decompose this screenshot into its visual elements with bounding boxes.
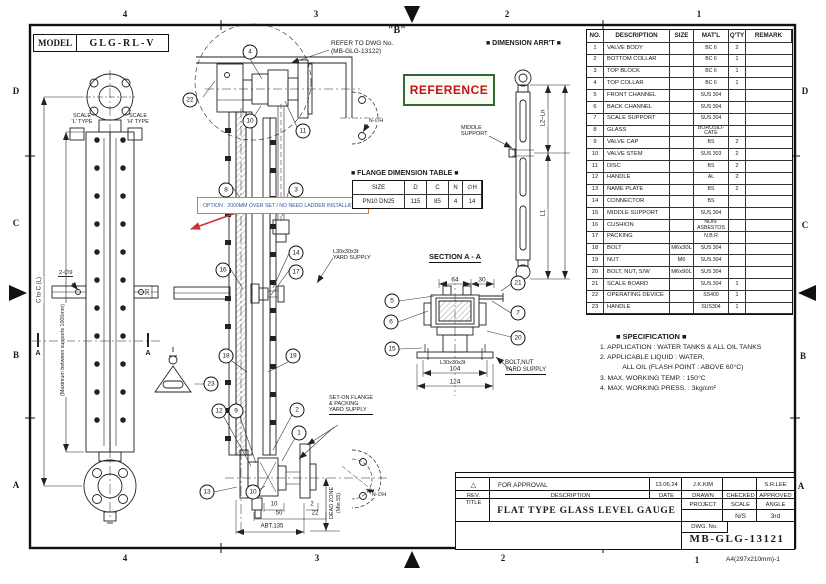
part-size: [670, 279, 694, 291]
part-remark: [746, 291, 792, 303]
parts-table-row: 17 PACKING N.B.R: [587, 232, 792, 244]
section-aa-title: SECTION A - A: [429, 253, 481, 263]
grid-col-top-2: 2: [505, 10, 510, 20]
part-description: BOLT, NUT, S/W: [604, 267, 670, 279]
parts-table-header-cell: NO.: [587, 30, 604, 43]
part-material: SUS304: [694, 303, 729, 315]
section-a-flag-right: A: [145, 350, 150, 358]
part-description: CUSHION: [604, 220, 670, 232]
part-qty: [729, 267, 746, 279]
part-qty: 2: [729, 43, 746, 55]
part-no: 21: [587, 279, 604, 291]
part-no: 18: [587, 244, 604, 256]
part-material: BS: [694, 185, 729, 197]
part-no: 22: [587, 291, 604, 303]
part-material: SUS 304: [694, 208, 729, 220]
part-qty: 2: [729, 173, 746, 185]
balloon-callout: 23: [204, 377, 219, 392]
part-size: [670, 173, 694, 185]
balloon-callout: 22: [183, 93, 198, 108]
dim-104-label: 104: [449, 365, 462, 372]
part-description: SCALE BOARD: [604, 279, 670, 291]
grid-col-bottom-3: 3: [315, 554, 320, 564]
part-size: M6x90L: [670, 267, 694, 279]
option-note-text: OPTION : 2000MM OVER SET / NO NEED LADDE…: [203, 203, 363, 209]
part-qty: [729, 196, 746, 208]
balloon-number: 4: [248, 49, 252, 56]
dim-l1-label: L1: [541, 209, 548, 218]
parts-table-header-row: NO.DESCRIPTIONSIZEMAT'LQ'TYREMARK: [587, 30, 792, 43]
part-remark: [746, 43, 792, 55]
part-description: BACK CHANNEL: [604, 102, 670, 114]
part-description: MIDDLE SUPPORT: [604, 208, 670, 220]
balloon-callout: 2: [290, 403, 305, 418]
dimension-arrt-drawing: [489, 70, 570, 279]
balloon-callout: 21: [511, 276, 526, 291]
grid-col-bottom-1: 1: [695, 556, 700, 566]
part-size: [670, 55, 694, 67]
part-remark: [746, 267, 792, 279]
parts-table-row: 22 OPERATING DEVICE SS400 1: [587, 291, 792, 303]
set-on-flange-note: SET-ON FLANGE& PACKINGYARD SUPPLY: [329, 395, 373, 415]
detail-b-title: "B": [388, 25, 406, 36]
part-remark: [746, 244, 792, 256]
detail-b-note-line2: (MB-GLG-13122): [331, 48, 381, 55]
flange-table-data-row: PN10 DN2511585414: [353, 195, 482, 208]
balloon-callout: 11: [296, 124, 311, 139]
part-description: BOTTOM COLLAR: [604, 55, 670, 67]
grid-row-left-a: A: [13, 481, 20, 491]
dim-30-label: 30: [477, 276, 486, 283]
middle-support-label-line2: SUPPORT: [461, 131, 488, 137]
part-description: OPERATING DEVICE: [604, 291, 670, 303]
parts-table-row: 7 SCALE SUPPORT SUS 304: [587, 114, 792, 126]
part-remark: [746, 220, 792, 232]
part-no: 19: [587, 255, 604, 267]
part-no: 20: [587, 267, 604, 279]
balloon-number: 20: [514, 335, 521, 342]
parts-table-row: 5 FRONT CHANNEL SUS 304: [587, 90, 792, 102]
grid-col-bottom-2: 2: [501, 554, 506, 564]
flange-table-header-cell: ∅H: [463, 181, 482, 195]
part-size: [670, 43, 694, 55]
grid-row-left-d: D: [13, 87, 20, 97]
part-size: [670, 114, 694, 126]
parts-table-row: 6 BACK CHANNEL SUS 304: [587, 102, 792, 114]
centering-arrow-right-icon: [798, 285, 816, 301]
balloon-callout: 6: [384, 315, 399, 330]
balloon-callout: 14: [289, 246, 304, 261]
parts-table-header-cell: REMARK: [746, 30, 792, 43]
part-size: [670, 232, 694, 244]
part-material: SUS 304: [694, 267, 729, 279]
flange-table-data-cell: PN10 DN25: [353, 195, 405, 208]
part-material: SUS 304: [694, 102, 729, 114]
flange-table-header-cell: SIZE: [353, 181, 405, 195]
dim-22-label: 22: [311, 511, 320, 518]
specification-line: 1. APPLICATION : WATER TANKS & ALL OIL T…: [600, 343, 812, 353]
balloon-callout: 20: [511, 331, 526, 346]
option-note-box: OPTION : 2000MM OVER SET / NO NEED LADDE…: [197, 197, 369, 214]
dead-zone-label: DEAD ZONE: [329, 486, 335, 520]
specification-block: ■ SPECIFICATION ■ 1. APPLICATION : WATER…: [600, 332, 812, 394]
part-description: CONNECTOR: [604, 196, 670, 208]
part-no: 1: [587, 43, 604, 55]
bolt-nut-yard-supply-note: BOLT,NUTYARD SUPPLY: [505, 360, 546, 375]
part-description: SCALE SUPPORT: [604, 114, 670, 126]
flange-table-header-cell: D: [405, 181, 427, 195]
model-label: MODEL: [34, 35, 77, 51]
balloon-callout: 19: [286, 349, 301, 364]
balloon-number: 16: [219, 267, 226, 274]
part-remark: [746, 114, 792, 126]
hole-count-label: 2-∅9: [58, 270, 73, 277]
part-material: BC 6: [694, 43, 729, 55]
specification-line: 4. MAX. WORKING PRESS. : 3kg/cm²: [600, 384, 812, 394]
balloon-callout: 15: [385, 342, 400, 357]
dwg-no-value: MB-GLG-13121: [681, 531, 793, 547]
part-size: [670, 90, 694, 102]
parts-table-header-cell: Q'TY: [729, 30, 746, 43]
part-qty: 1: [729, 67, 746, 79]
part-description: NAME PLATE: [604, 185, 670, 197]
balloon-callout: 10: [246, 485, 261, 500]
part-remark: [746, 78, 792, 90]
part-remark: [746, 102, 792, 114]
part-remark: [746, 232, 792, 244]
part-qty: [729, 220, 746, 232]
balloon-callout: 5: [385, 294, 400, 309]
scale-l-type-label: SCALE'L' TYPE: [70, 113, 94, 125]
part-no: 13: [587, 185, 604, 197]
part-no: 15: [587, 208, 604, 220]
part-no: 14: [587, 196, 604, 208]
part-remark: [746, 149, 792, 161]
part-size: [670, 137, 694, 149]
part-qty: [729, 90, 746, 102]
dim-abt-label: ABT.135: [260, 524, 285, 531]
l30-yard-supply-note: L30x30x3tYARD SUPPLY: [333, 249, 371, 261]
parts-table-row: 19 NUT M6 SUS 304: [587, 255, 792, 267]
balloon-callout: 17: [289, 265, 304, 280]
parts-table-row: 4 TOP COLLAR BC 6 1: [587, 78, 792, 90]
part-description: TOP BLOCK: [604, 67, 670, 79]
part-description: HANDLE: [604, 173, 670, 185]
dim-2-label: 2: [309, 502, 314, 509]
balloon-callout: 12: [212, 404, 227, 419]
specification-line: 2. APPLICABLE LIQUID : WATER,: [600, 353, 812, 363]
part-no: 17: [587, 232, 604, 244]
parts-table-row: 1 VALVE BODY BC 6 2: [587, 43, 792, 55]
part-material: BC 6: [694, 78, 729, 90]
balloon-number: 1: [297, 430, 301, 437]
parts-table-row: 13 NAME PLATE BS 2: [587, 185, 792, 197]
parts-table-row: 23 HANDLE SUS304 1: [587, 303, 792, 315]
part-material: BC 6: [694, 67, 729, 79]
parts-table-header-cell: DESCRIPTION: [604, 30, 670, 43]
balloon-callout: 3: [289, 183, 304, 198]
part-size: [670, 161, 694, 173]
part-remark: [746, 255, 792, 267]
dimension-arrt-title: ■ DIMENSION ARR'T ■: [486, 40, 561, 48]
parts-table-row: 20 BOLT, NUT, S/W M6x90L SUS 304: [587, 267, 792, 279]
model-value: GLG-RL-V: [77, 35, 168, 51]
part-material: N.B.R: [694, 232, 729, 244]
parts-table-row: 15 MIDDLE SUPPORT SUS 304: [587, 208, 792, 220]
parts-table-header-cell: SIZE: [670, 30, 694, 43]
part-qty: [729, 244, 746, 256]
dim-124-label: 124: [449, 378, 462, 385]
section-aa-drawing: [417, 276, 512, 396]
balloon-number: 11: [300, 128, 307, 135]
part-qty: 2: [729, 185, 746, 197]
part-material: SUS 304: [694, 255, 729, 267]
part-remark: [746, 67, 792, 79]
part-material: BOROSILI-CATE: [694, 126, 729, 138]
scale-h-type-label: SCALE'H' TYPE: [126, 113, 150, 125]
part-remark: [746, 279, 792, 291]
part-remark: [746, 303, 792, 315]
flange-table-header-cell: C: [427, 181, 449, 195]
parts-table-row: 3 TOP BLOCK BC 6 1: [587, 67, 792, 79]
max-support-note: (Maximum between supports 1000mm): [61, 303, 67, 397]
balloon-number: 21: [514, 280, 521, 287]
balloon-callout: 18: [219, 349, 234, 364]
flange-table-data-cell: 115: [405, 195, 427, 208]
parts-table-row: 21 SCALE BOARD SUS 304 1: [587, 279, 792, 291]
part-remark: [746, 161, 792, 173]
reference-box: REFERENCE: [403, 74, 495, 106]
balloon-number: 12: [215, 408, 222, 415]
part-no: 6: [587, 102, 604, 114]
balloon-callout: 10: [243, 114, 258, 129]
part-size: [670, 102, 694, 114]
left-gauge-drawing: [32, 70, 191, 523]
dim-64-label: 64: [450, 276, 459, 283]
part-qty: 1: [729, 291, 746, 303]
part-qty: 2: [729, 149, 746, 161]
grid-row-right-a: A: [798, 482, 805, 492]
grid-col-top-4: 4: [123, 10, 128, 20]
part-description: TOP COLLAR: [604, 78, 670, 90]
part-size: M6x30L: [670, 244, 694, 256]
grid-col-top-3: 3: [314, 10, 319, 20]
part-qty: [729, 255, 746, 267]
title-block-empty-cell: [455, 521, 684, 550]
grid-row-left-b: B: [13, 351, 19, 361]
balloon-callout: 16: [216, 263, 231, 278]
balloon-callout: 8: [219, 183, 234, 198]
part-description: VALVE CAP: [604, 137, 670, 149]
part-material: AL: [694, 173, 729, 185]
balloon-number: 3: [294, 187, 298, 194]
balloon-number: 2: [295, 407, 299, 414]
n-phi-h-bottom-label: N-∅H: [371, 492, 388, 498]
centering-arrow-bottom-icon: [404, 551, 420, 568]
part-material: SUS 304: [694, 279, 729, 291]
part-remark: [746, 137, 792, 149]
part-remark: [746, 90, 792, 102]
part-no: 3: [587, 67, 604, 79]
part-size: [670, 78, 694, 90]
grid-col-top-1: 1: [697, 10, 702, 20]
centering-arrow-top-icon: [404, 6, 420, 23]
part-description: DISC: [604, 161, 670, 173]
balloon-number: 13: [203, 489, 210, 496]
detail-b-note-line1: REFER TO DWG No.: [331, 40, 393, 47]
parts-table-row: 10 VALVE STEM SUS 303 2: [587, 149, 792, 161]
part-material: NON-ASBESTOS: [694, 220, 729, 232]
flange-table-data-cell: 85: [427, 195, 449, 208]
part-material: SS400: [694, 291, 729, 303]
part-no: 16: [587, 220, 604, 232]
parts-table-row: 8 GLASS BOROSILI-CATE: [587, 126, 792, 138]
flange-table-data-cell: 14: [463, 195, 482, 208]
centering-arrow-left-icon: [9, 285, 27, 301]
part-no: 2: [587, 55, 604, 67]
part-qty: 1: [729, 78, 746, 90]
part-material: BS: [694, 137, 729, 149]
part-description: FRONT CHANNEL: [604, 90, 670, 102]
balloon-callout: 4: [243, 45, 258, 60]
model-box: MODEL GLG-RL-V: [33, 34, 169, 52]
balloon-number: 23: [207, 381, 214, 388]
balloon-number: 15: [388, 346, 395, 353]
balloon-callout: 7: [511, 306, 526, 321]
revision-triangle-icon: △: [471, 481, 476, 489]
balloon-number: 6: [389, 319, 393, 326]
parts-table-header-cell: MAT'L: [694, 30, 729, 43]
part-no: 5: [587, 90, 604, 102]
part-qty: [729, 232, 746, 244]
parts-list-table: NO.DESCRIPTIONSIZEMAT'LQ'TYREMARK 1 VALV…: [586, 29, 793, 315]
specification-line: ALL OIL (FLASH POINT : ABOVE 60°C): [600, 363, 812, 373]
part-size: [670, 196, 694, 208]
dead-zone-min-label: (Min.55): [336, 492, 342, 514]
balloon-number: 22: [186, 97, 193, 104]
part-size: [670, 149, 694, 161]
part-qty: 1: [729, 55, 746, 67]
parts-table-row: 11 DISC BS 2: [587, 161, 792, 173]
part-description: HANDLE: [604, 303, 670, 315]
flange-table-title: ■ FLANGE DIMENSION TABLE ■: [351, 170, 459, 178]
dim-50-label: 50: [275, 511, 284, 518]
part-qty: 1: [729, 279, 746, 291]
part-material: SUS 304: [694, 90, 729, 102]
part-no: 4: [587, 78, 604, 90]
part-qty: [729, 102, 746, 114]
balloon-number: 14: [292, 250, 299, 257]
dim-10-label: 10: [270, 502, 279, 509]
section-a-flag-left: A: [35, 350, 40, 358]
part-description: PACKING: [604, 232, 670, 244]
part-remark: [746, 173, 792, 185]
part-description: NUT: [604, 255, 670, 267]
balloon-number: 5: [390, 298, 394, 305]
part-size: [670, 126, 694, 138]
balloon-callout: 9: [229, 404, 244, 419]
part-size: [670, 291, 694, 303]
part-size: [670, 303, 694, 315]
part-no: 8: [587, 126, 604, 138]
dim-30-left-label: 30: [145, 288, 151, 296]
dim-l2-label: L2~Ln: [541, 109, 548, 128]
specification-title: ■ SPECIFICATION ■: [616, 332, 812, 341]
part-material: SUS 303: [694, 149, 729, 161]
balloon-callout: 1: [292, 426, 307, 441]
balloon-number: 10: [249, 489, 256, 496]
part-qty: 2: [729, 137, 746, 149]
part-qty: 1: [729, 303, 746, 315]
part-qty: [729, 114, 746, 126]
paper-size-note: A4(297x210mm)-1: [726, 556, 780, 563]
balloon-number: 7: [516, 310, 520, 317]
part-no: 7: [587, 114, 604, 126]
specification-line: 3. MAX. WORKING TEMP. : 150°C: [600, 374, 812, 384]
part-description: VALVE STEM: [604, 149, 670, 161]
balloon-number: 18: [222, 353, 229, 360]
part-size: [670, 208, 694, 220]
reference-label: REFERENCE: [410, 83, 489, 97]
part-material: BS: [694, 161, 729, 173]
part-no: 23: [587, 303, 604, 315]
balloon-number: 17: [292, 269, 299, 276]
angle-size-label: L30x30x3t: [440, 360, 465, 366]
balloon-number: 19: [289, 353, 296, 360]
c-to-c-dimension-label: C to C (L): [37, 276, 44, 304]
part-size: M6: [670, 255, 694, 267]
part-no: 10: [587, 149, 604, 161]
flange-table-data-cell: 4: [449, 195, 463, 208]
grid-row-right-d: D: [802, 87, 809, 97]
grid-row-right-c: C: [802, 221, 809, 231]
part-material: SUS 304: [694, 114, 729, 126]
parts-table-row: 2 BOTTOM COLLAR BC 6 1: [587, 55, 792, 67]
part-size: [670, 67, 694, 79]
flange-table-header-cell: N: [449, 181, 463, 195]
part-no: 12: [587, 173, 604, 185]
balloon-number: 9: [234, 408, 238, 415]
part-no: 9: [587, 137, 604, 149]
part-no: 11: [587, 161, 604, 173]
parts-table-row: 16 CUSHION NON-ASBESTOS: [587, 220, 792, 232]
parts-table-row: 12 HANDLE AL 2: [587, 173, 792, 185]
balloon-callout: 13: [200, 485, 215, 500]
flange-dimension-table: SIZEDCN∅H PN10 DN2511585414: [352, 180, 483, 209]
balloon-number: 8: [224, 187, 228, 194]
part-size: [670, 220, 694, 232]
drawing-sheet: MODEL GLG-RL-V 4 3 2 1 4 3 2 1 D C B A D…: [0, 0, 826, 584]
part-description: GLASS: [604, 126, 670, 138]
part-description: VALVE BODY: [604, 43, 670, 55]
parts-table-row: 18 BOLT M6x30L SUS 304: [587, 244, 792, 256]
part-remark: [746, 126, 792, 138]
part-qty: [729, 208, 746, 220]
part-qty: [729, 126, 746, 138]
grid-col-bottom-4: 4: [123, 554, 128, 564]
part-remark: [746, 196, 792, 208]
part-description: BOLT: [604, 244, 670, 256]
part-material: SUS 304: [694, 244, 729, 256]
grid-row-left-c: C: [13, 219, 20, 229]
part-material: BC 6: [694, 55, 729, 67]
parts-table-row: 14 CONNECTOR BS: [587, 196, 792, 208]
part-remark: [746, 185, 792, 197]
part-remark: [746, 208, 792, 220]
part-remark: [746, 55, 792, 67]
parts-table-row: 9 VALVE CAP BS 2: [587, 137, 792, 149]
part-material: BS: [694, 196, 729, 208]
